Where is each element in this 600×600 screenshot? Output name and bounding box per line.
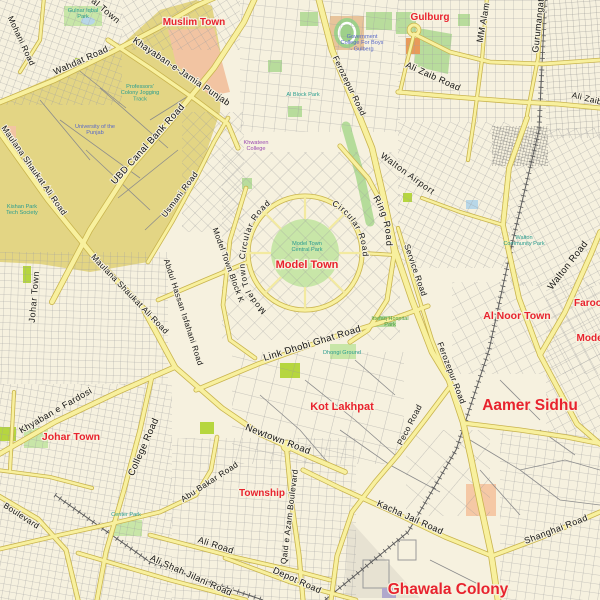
place-label: Muslim Town — [163, 17, 226, 28]
place-label: Johar Town — [42, 431, 100, 443]
place-label: Gulburg — [411, 12, 450, 23]
street-map[interactable]: Mohani RoadWahdat RoadKhayaban-e-Jamia P… — [0, 0, 600, 600]
street-grid-layer — [0, 0, 600, 600]
place-label: Al Noor Town — [483, 310, 550, 322]
street-grid — [0, 252, 168, 384]
map-canvas[interactable]: Mohani RoadWahdat RoadKhayaban-e-Jamia P… — [0, 0, 600, 600]
poi-label: Center Park — [111, 512, 141, 518]
place-label: Kot Lakhpat — [310, 401, 374, 413]
poi-label: KhwateenCollege — [244, 140, 269, 152]
park-bright — [200, 422, 214, 434]
place-label: Model — [577, 333, 600, 344]
place-label: Ghawala Colony — [388, 581, 509, 598]
street-grid — [0, 384, 172, 600]
street-grid — [546, 0, 600, 138]
place-label: Farooq — [574, 298, 600, 309]
poi-label: Al Block Park — [286, 92, 319, 98]
poi-label: Model TownCentral Park — [291, 241, 322, 253]
poi-label: Dhongi Ground — [323, 350, 361, 356]
poi-label: Kishan ParkTech Society — [6, 204, 38, 216]
place-label: Aamer Sidhu — [482, 397, 578, 414]
street-grid — [240, 0, 400, 132]
place-label: Model Town — [276, 259, 339, 271]
place-label: Township — [239, 488, 285, 499]
